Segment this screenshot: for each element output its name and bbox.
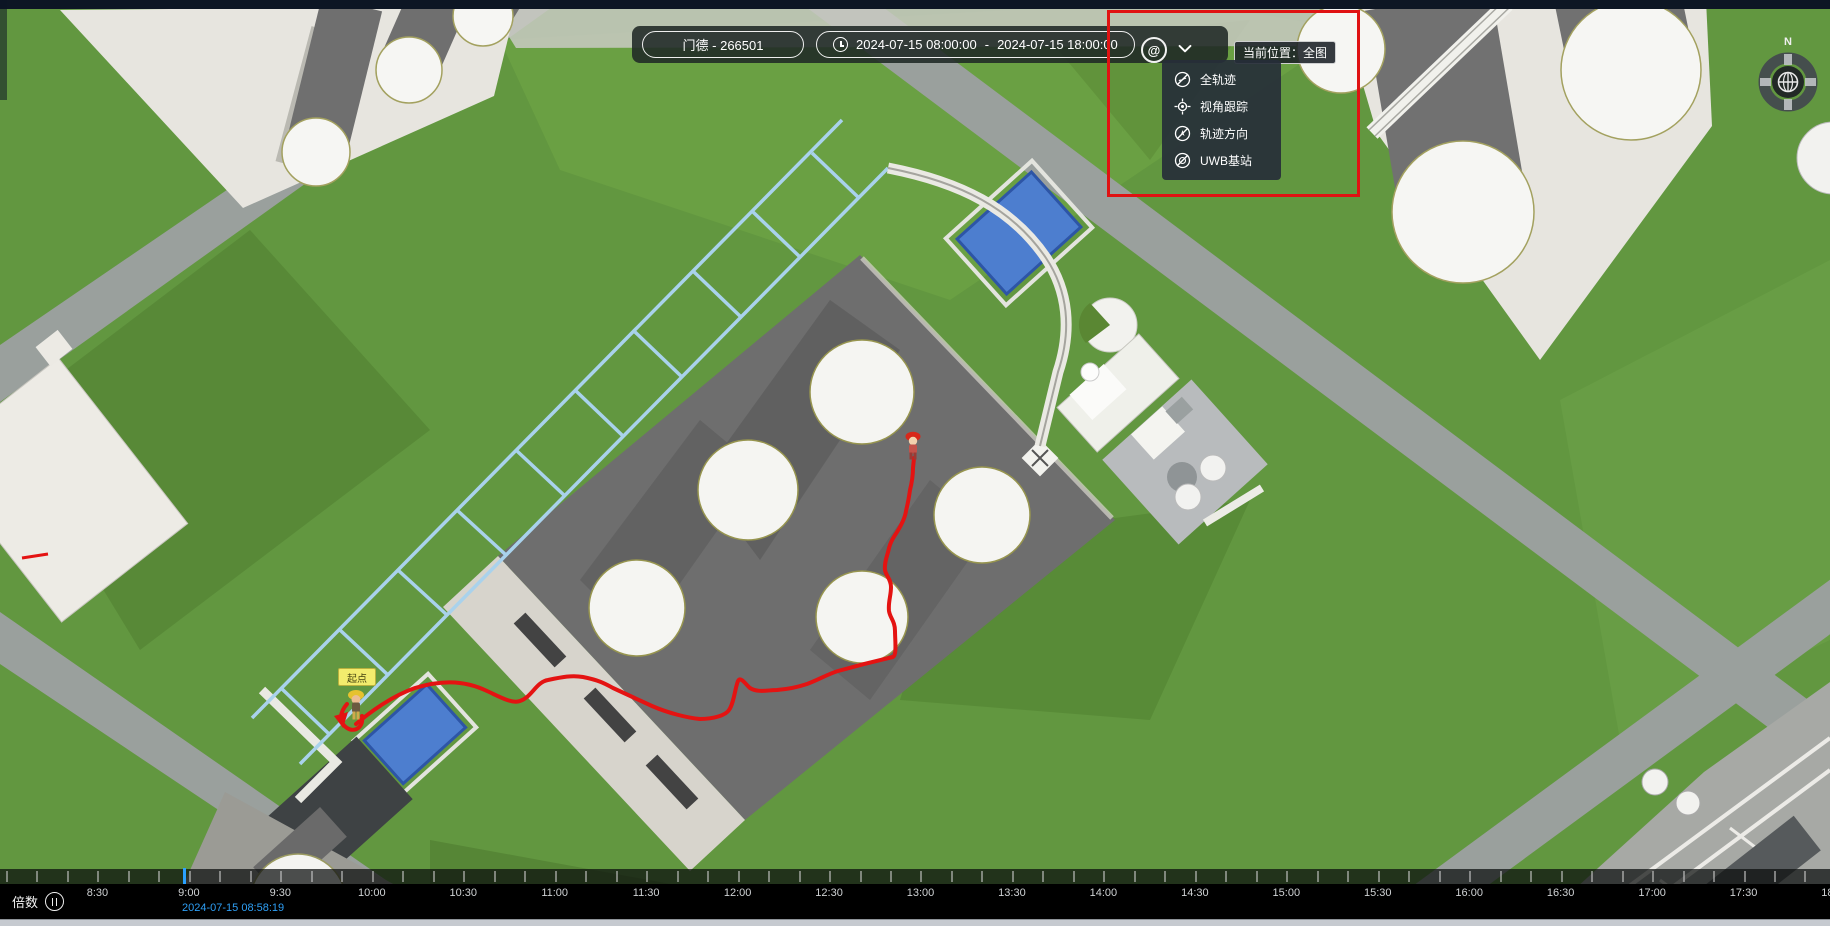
timeline-tick [189, 871, 191, 882]
timeline-tick [646, 871, 648, 882]
timeline-tick [494, 871, 496, 882]
timeline-tick [1012, 871, 1014, 882]
timeline-tick [1561, 871, 1563, 882]
timeline-tick [1713, 871, 1715, 882]
track-direction-icon [1174, 125, 1191, 142]
locate-at-button[interactable]: @ [1141, 37, 1167, 63]
compass-north-label: N [1756, 34, 1820, 50]
menu-item-full-track[interactable]: 全轨迹 [1162, 66, 1281, 93]
timeline-tick [738, 871, 740, 882]
timeline-tick [1652, 871, 1654, 882]
timeline-tick [677, 871, 679, 882]
time-range-pill[interactable]: 2024-07-15 08:00:00 - 2024-07-15 18:00:0… [816, 31, 1135, 58]
timeline-tick-label: 13:00 [891, 887, 951, 899]
timeline-tick [1500, 871, 1502, 882]
timeline-tick [1042, 871, 1044, 882]
timeline-tick [951, 871, 953, 882]
timeline-tick [36, 871, 38, 882]
menu-item-label: 视角跟踪 [1200, 98, 1248, 115]
time-range-start: 2024-07-15 08:00:00 [856, 37, 977, 52]
person-tag-label: 门德 - 266501 [683, 35, 764, 54]
timeline-tick [890, 871, 892, 882]
menu-item-label: 全轨迹 [1200, 71, 1236, 88]
speed-label: 倍数 [12, 892, 38, 911]
timeline-tick-label: 16:00 [1439, 887, 1499, 899]
timeline-tick [341, 871, 343, 882]
timeline-tick [1225, 871, 1227, 882]
timeline-tick [372, 871, 374, 882]
menu-item-label: UWB基站 [1200, 152, 1252, 169]
timeline-tick [829, 871, 831, 882]
timeline-tick [1622, 871, 1624, 882]
timeline-tick [616, 871, 618, 882]
full-track-icon [1174, 71, 1191, 88]
timeline-tick-label: 18:00 [1805, 887, 1830, 899]
timeline-tick [1591, 871, 1593, 882]
window-bottom-edge [0, 919, 1830, 926]
timeline-tick [707, 871, 709, 882]
timeline-tick [128, 871, 130, 882]
timeline-tick [1439, 871, 1441, 882]
timeline-tick-label: 8:30 [67, 887, 127, 899]
timeline-tick [463, 871, 465, 882]
pause-icon [52, 898, 53, 906]
timeline-tick [1469, 871, 1471, 882]
clock-icon [833, 37, 848, 52]
current-time-readout: 2024-07-15 08:58:19 [182, 902, 284, 914]
timeline-tick [1347, 871, 1349, 882]
timeline-tick-bar[interactable] [0, 869, 1830, 884]
timeline-tick [1286, 871, 1288, 882]
window-top-edge [0, 0, 1830, 9]
timeline-tick [524, 871, 526, 882]
top-toolbar: 门德 - 266501 2024-07-15 08:00:00 - 2024-0… [632, 26, 1228, 63]
timeline-tick [433, 871, 435, 882]
pause-button[interactable] [45, 892, 64, 911]
person-tag-pill[interactable]: 门德 - 266501 [642, 31, 804, 58]
view-follow-icon [1174, 98, 1191, 115]
menu-item-track-direction[interactable]: 轨迹方向 [1162, 120, 1281, 147]
timeline-tick [402, 871, 404, 882]
timeline-tick [920, 871, 922, 882]
timeline-tick-label: 9:00 [159, 887, 219, 899]
timeline-tick [585, 871, 587, 882]
menu-item-uwb-station[interactable]: UWB基站 [1162, 147, 1281, 174]
timeline-tick-label: 15:00 [1256, 887, 1316, 899]
timeline-tick-label: 17:30 [1714, 887, 1774, 899]
timeline-tick [158, 871, 160, 882]
timeline-tick-label: 17:00 [1622, 887, 1682, 899]
timeline-tick [768, 871, 770, 882]
timeline-tick [1256, 871, 1258, 882]
timeline-tick [1317, 871, 1319, 882]
timeline-tick-label: 11:00 [525, 887, 585, 899]
timeline-tick [1103, 871, 1105, 882]
time-range-end: 2024-07-15 18:00:00 [997, 37, 1118, 52]
timeline-tick [67, 871, 69, 882]
timeline-tick [860, 871, 862, 882]
playback-speed-control: 倍数 [12, 892, 64, 911]
timeline-tick-label: 10:00 [342, 887, 402, 899]
start-point-label: 起点 [338, 668, 376, 686]
chevron-down-icon [1178, 43, 1192, 55]
timeline-tick [250, 871, 252, 882]
timeline-tick [1164, 871, 1166, 882]
timeline-tick-label: 12:30 [799, 887, 859, 899]
timeline-tick [1134, 871, 1136, 882]
timeline-tick [1073, 871, 1075, 882]
window-left-edge [0, 0, 7, 100]
timeline-tick [1804, 871, 1806, 882]
timeline-tick-label: 14:00 [1073, 887, 1133, 899]
timeline-tick [280, 871, 282, 882]
at-icon: @ [1148, 43, 1161, 58]
timeline-tick-label: 16:30 [1531, 887, 1591, 899]
timeline-tick-label: 9:30 [250, 887, 310, 899]
map-3d-scene[interactable] [0, 0, 1830, 926]
timeline-tick-label: 14:30 [1165, 887, 1225, 899]
timeline-tick [1378, 871, 1380, 882]
compass-icon [1756, 50, 1820, 114]
timeline-tick [311, 871, 313, 882]
timeline-tick-label: 13:30 [982, 887, 1042, 899]
tracking-app-window: 门德 - 266501 2024-07-15 08:00:00 - 2024-0… [0, 0, 1830, 926]
timeline-tick [1774, 871, 1776, 882]
timeline-tick [1195, 871, 1197, 882]
timeline-label-bar: 8:309:009:3010:0010:3011:0011:3012:0012:… [0, 884, 1830, 919]
time-range-separator: - [985, 37, 989, 52]
timeline-tick [1744, 871, 1746, 882]
timeline-tick [1408, 871, 1410, 882]
timeline-tick [799, 871, 801, 882]
timeline-tick-label: 11:30 [616, 887, 676, 899]
timeline-tick-label: 15:30 [1348, 887, 1408, 899]
layers-dropdown-menu: 全轨迹 视角跟踪 轨迹方向 [1162, 60, 1281, 180]
menu-item-label: 轨迹方向 [1200, 125, 1248, 142]
timeline-tick-label: 12:00 [708, 887, 768, 899]
timeline-tick [219, 871, 221, 882]
timeline-tick [1530, 871, 1532, 882]
menu-item-view-follow[interactable]: 视角跟踪 [1162, 93, 1281, 120]
timeline-tick [6, 871, 8, 882]
uwb-station-icon [1174, 152, 1191, 169]
timeline-tick-label: 10:30 [433, 887, 493, 899]
compass-widget[interactable]: N [1756, 34, 1820, 118]
timeline-tick [97, 871, 99, 882]
layers-dropdown-toggle[interactable] [1172, 40, 1198, 58]
timeline-tick [1683, 871, 1685, 882]
timeline-tick [555, 871, 557, 882]
timeline-tick [981, 871, 983, 882]
